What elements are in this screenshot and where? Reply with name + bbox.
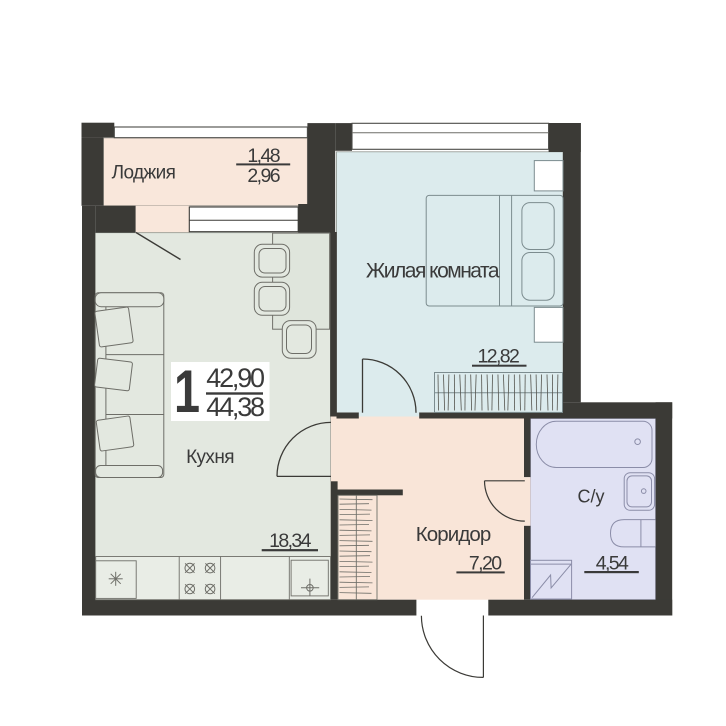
svg-text:С/у: С/у (578, 487, 605, 507)
svg-text:44,38: 44,38 (206, 392, 264, 422)
svg-text:Коридор: Коридор (416, 523, 491, 546)
svg-text:1: 1 (174, 358, 200, 425)
svg-text:18,34: 18,34 (269, 530, 312, 552)
svg-text:42,90: 42,90 (206, 363, 264, 393)
svg-text:Лоджия: Лоджия (112, 163, 176, 184)
svg-text:Жилая комната: Жилая комната (366, 260, 500, 283)
svg-text:12,82: 12,82 (477, 346, 519, 368)
svg-text:2,96: 2,96 (247, 165, 279, 187)
svg-text:Кухня: Кухня (186, 447, 234, 468)
